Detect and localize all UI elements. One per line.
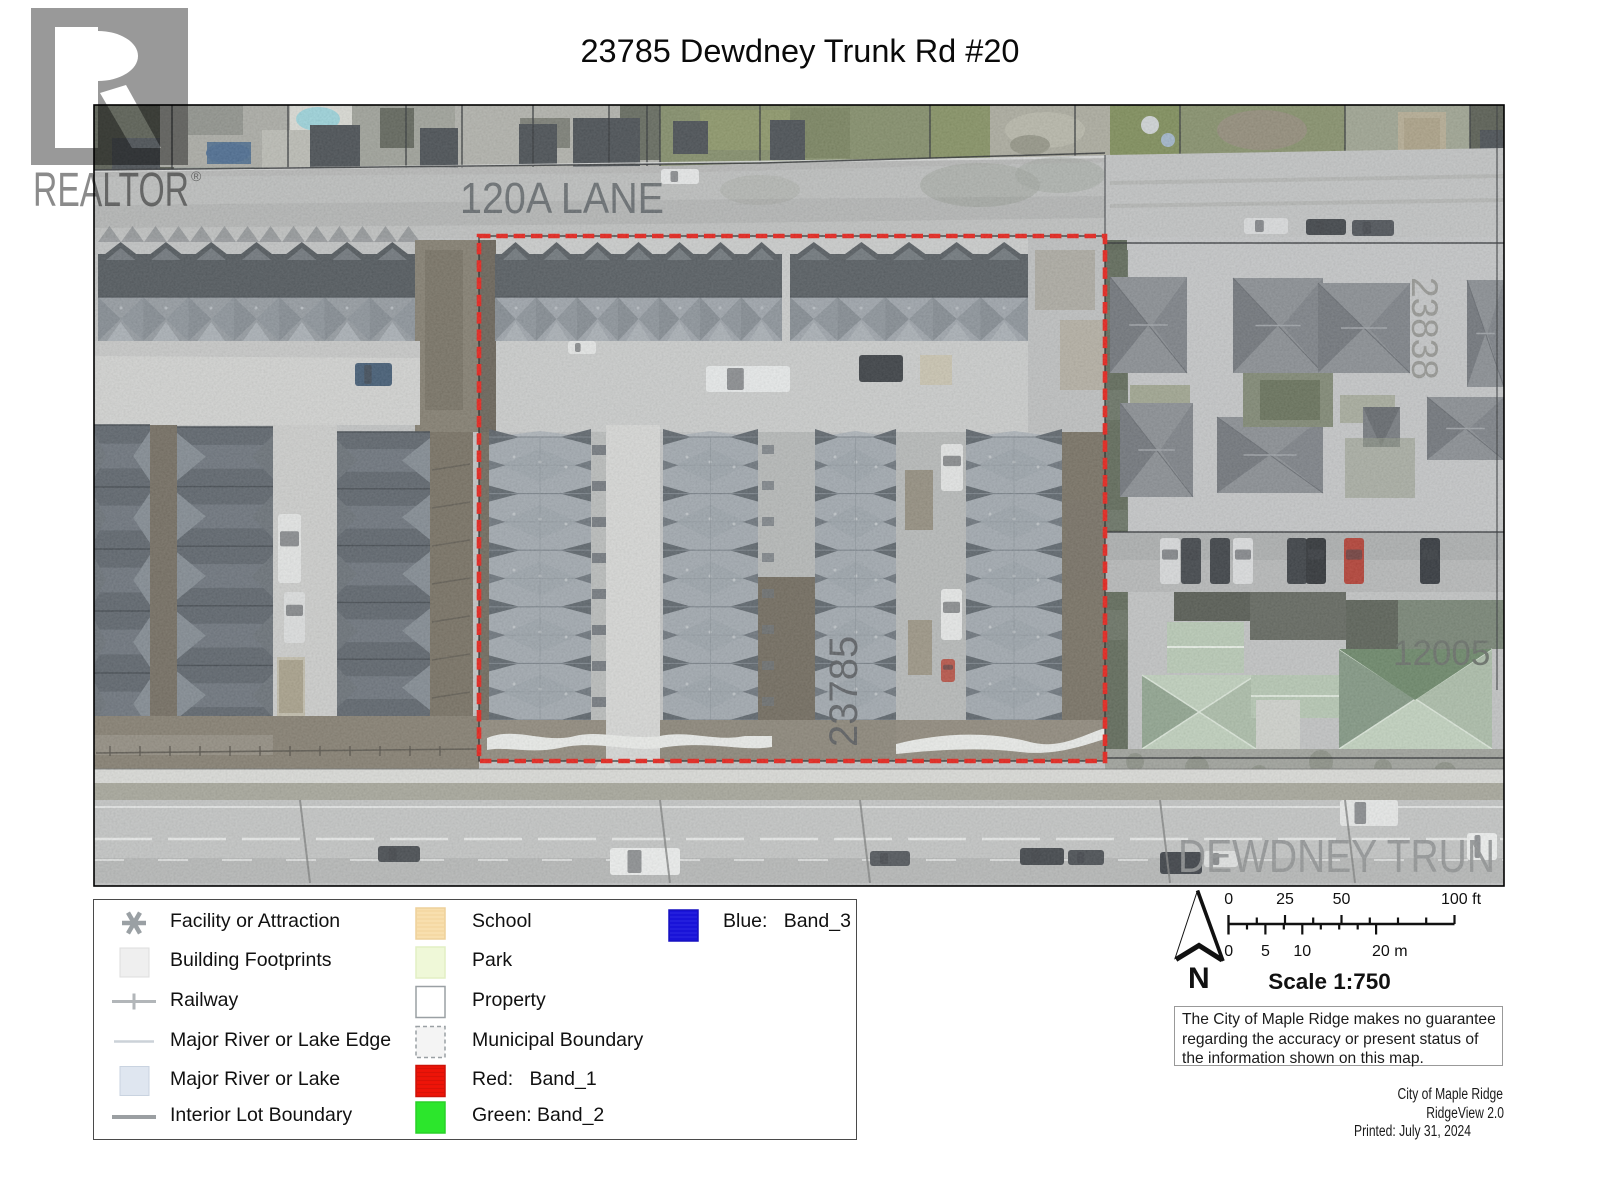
svg-text:REALTOR: REALTOR: [33, 164, 189, 217]
svg-text:0: 0: [1224, 891, 1233, 908]
svg-text:®: ®: [191, 168, 202, 184]
svg-text:Scale 1:750: Scale 1:750: [1268, 969, 1391, 994]
svg-text:20 m: 20 m: [1372, 943, 1408, 960]
svg-text:5: 5: [1261, 943, 1270, 960]
svg-text:10: 10: [1293, 943, 1311, 960]
svg-text:100 ft: 100 ft: [1441, 891, 1482, 908]
svg-text:25: 25: [1276, 891, 1294, 908]
svg-text:N: N: [1188, 962, 1210, 995]
svg-text:0: 0: [1224, 943, 1233, 960]
svg-text:50: 50: [1333, 891, 1351, 908]
